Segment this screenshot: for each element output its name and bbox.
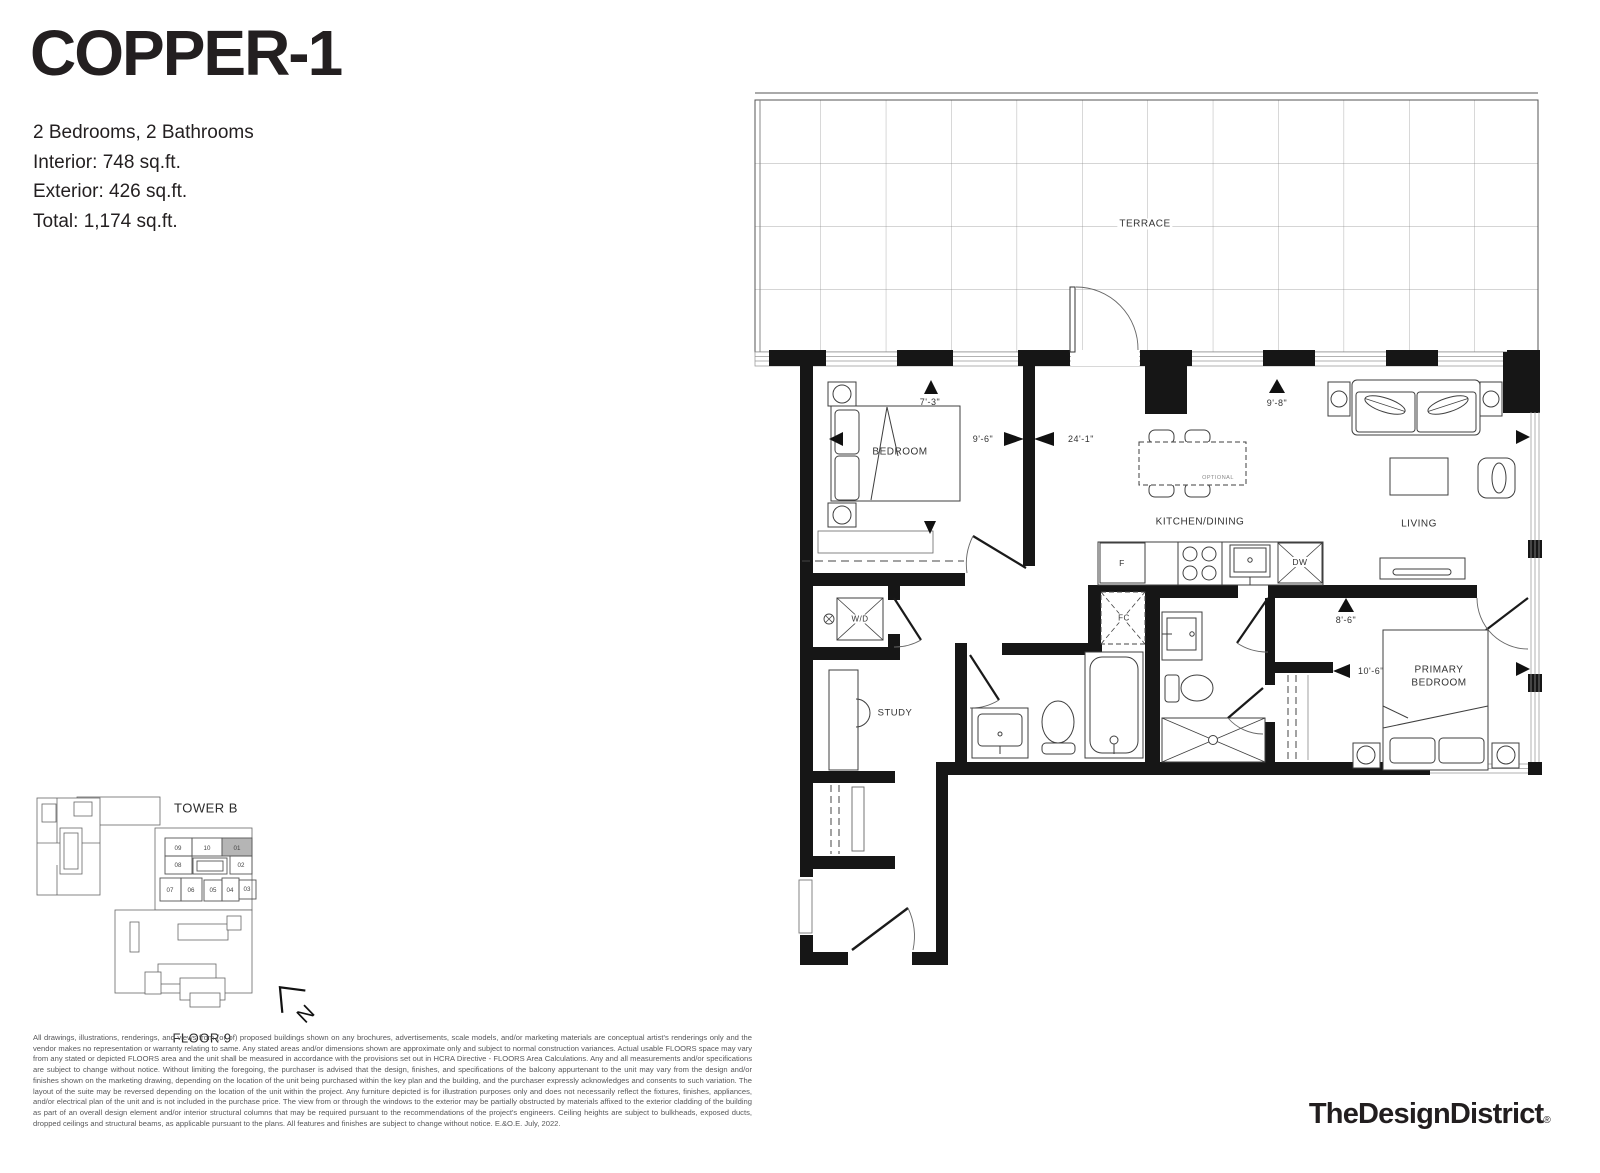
fixture-label-fridge: F [1119, 558, 1125, 568]
main-bathroom [970, 652, 1143, 758]
bedroom-closet [802, 531, 964, 561]
bedroom-door [966, 536, 1026, 573]
keyplan-unit-03: 03 [244, 886, 251, 893]
keyplan-unit-02: 02 [238, 862, 245, 869]
ensuite-bathroom [1162, 598, 1268, 762]
dim-bedroom-width: 7'-3" [920, 397, 940, 407]
fixture-label-dishwasher: DW [1290, 557, 1309, 567]
dim-primary-depth: 10'-6" [1358, 666, 1384, 676]
registered-trademark-icon: ® [1543, 1115, 1550, 1126]
floor-plan: TERRACE BEDROOM KITCHEN/DINING LIVING PR… [740, 90, 1550, 975]
keyplan-unit-09: 09 [175, 845, 182, 852]
keyplan-unit-05: 05 [210, 887, 217, 894]
room-label-primary-bedroom: PRIMARY BEDROOM [1404, 665, 1474, 690]
stat-interior-area: Interior: 748 sq.ft. [33, 148, 254, 178]
stat-bedrooms-bathrooms: 2 Bedrooms, 2 Bathrooms [33, 118, 254, 148]
laundry-closet [824, 598, 921, 647]
dim-primary-width: 8'-6" [1336, 615, 1356, 625]
floorplan-page: COPPER-1 2 Bedrooms, 2 Bathrooms Interio… [0, 0, 1600, 1173]
keyplan-unit-04: 04 [227, 887, 234, 894]
keyplan-unit-07: 07 [167, 887, 174, 894]
entry-door [852, 908, 914, 950]
fixture-label-washer-dryer: W/D [849, 615, 870, 624]
keyplan-drawing: 09 10 01 08 02 07 06 05 04 03 [30, 788, 290, 1053]
dim-living-width: 9'-8" [1267, 398, 1287, 408]
room-label-bedroom: BEDROOM [872, 447, 927, 458]
study-closet [831, 785, 864, 854]
dining-set [1139, 430, 1246, 497]
unit-stats: 2 Bedrooms, 2 Bathrooms Interior: 748 sq… [33, 118, 254, 236]
dim-bedroom-depth: 9'-6" [973, 434, 993, 444]
primary-closet [1288, 675, 1308, 760]
stat-total-area: Total: 1,174 sq.ft. [33, 207, 254, 237]
legal-disclaimer: All drawings, illustrations, renderings,… [33, 1033, 752, 1129]
brand-logo: TheDesignDistrict® [1245, 1098, 1550, 1131]
keyplan-tower-label: TOWER B [174, 801, 238, 816]
room-label-terrace: TERRACE [1117, 219, 1172, 230]
room-label-living: LIVING [1401, 519, 1437, 530]
study-furniture [829, 670, 870, 770]
room-label-study: STUDY [878, 708, 913, 719]
stat-exterior-area: Exterior: 426 sq.ft. [33, 177, 254, 207]
label-optional: OPTIONAL [1202, 475, 1234, 481]
room-label-kitchen-dining: KITCHEN/DINING [1156, 517, 1245, 528]
page-title: COPPER-1 [30, 16, 341, 90]
dim-overall-width: 24'-1" [1068, 434, 1094, 444]
key-plan: TOWER B [30, 788, 290, 1053]
north-label: N [293, 1001, 320, 1028]
brand-logo-text: TheDesignDistrict [1309, 1098, 1544, 1130]
keyplan-unit-06: 06 [188, 887, 195, 894]
keyplan-unit-10: 10 [204, 845, 211, 852]
keyplan-unit-08: 08 [175, 862, 182, 869]
kitchen-counter [1098, 542, 1323, 585]
living-furniture [1328, 380, 1515, 579]
entry-side-panel [799, 880, 812, 933]
primary-bedroom-furniture [1353, 630, 1519, 770]
fixture-label-fan-coil: FC [1116, 614, 1132, 623]
keyplan-unit-01: 01 [234, 845, 241, 852]
